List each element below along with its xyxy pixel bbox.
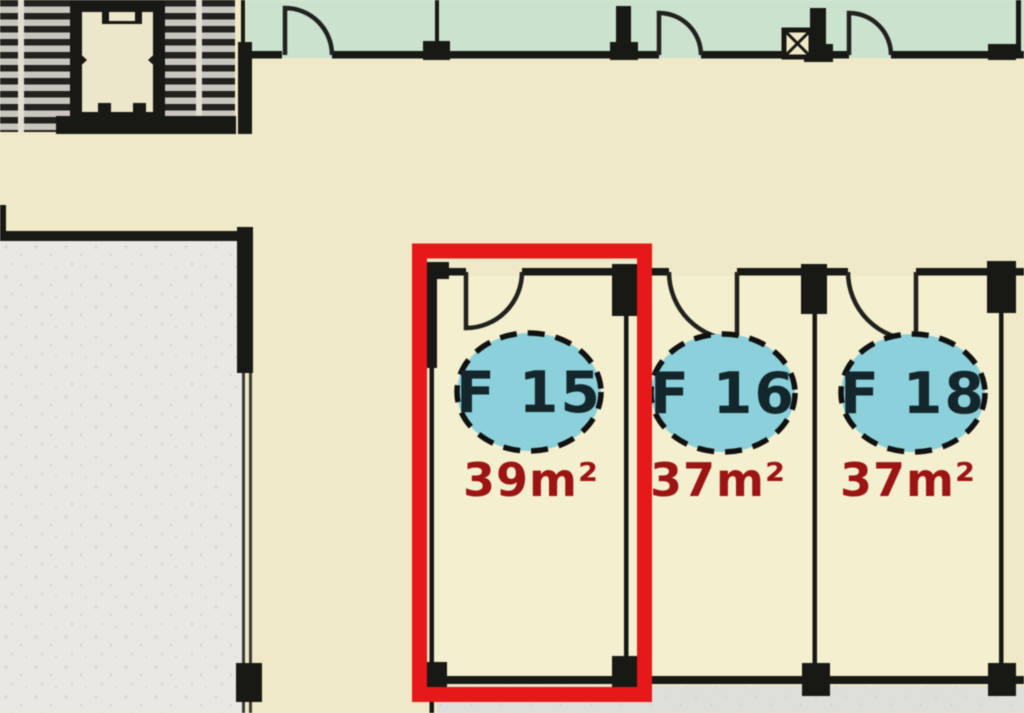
unit-f18[interactable]: F 18 37m² [840, 334, 986, 507]
stairwell-right-wall [241, 0, 245, 46]
unit-id-label: F 18 [840, 361, 986, 427]
stairs-gap [18, 0, 24, 132]
unit-id-label: F 16 [650, 361, 796, 427]
floor-plan-screenshot: F 15 39m² F 16 37m² F 18 37m² [0, 0, 1024, 713]
stairs-treads-icon [0, 0, 70, 132]
unit-f15[interactable]: F 15 39m² [456, 333, 602, 507]
terrace-area [0, 241, 245, 713]
stairs-gap [196, 0, 202, 118]
unit-area-label: 37m² [650, 453, 786, 507]
unit-area-label: 37m² [840, 453, 976, 507]
shaft-x-icon [784, 30, 811, 57]
elevator-icon [70, 0, 165, 124]
floor-plan-canvas: F 15 39m² F 16 37m² F 18 37m² [0, 0, 1024, 713]
unit-area-label: 39m² [463, 453, 599, 507]
unit-f16[interactable]: F 16 37m² [650, 334, 796, 507]
unit-id-label: F 15 [456, 360, 602, 426]
